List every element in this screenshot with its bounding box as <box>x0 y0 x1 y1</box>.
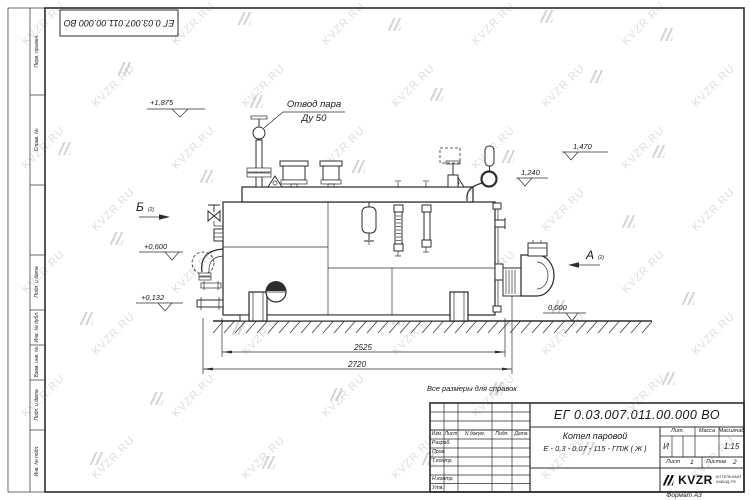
safety-valve-2 <box>320 161 342 187</box>
col-ndokum: N докум. <box>458 430 492 439</box>
side-label-inv-podl: Инв. № подл. <box>34 445 40 476</box>
elevation-0000: 0,000 <box>548 304 567 312</box>
row-tkontr: Т.контр. <box>432 459 453 464</box>
support-leg-1 <box>249 292 267 321</box>
side-label-vzam: Взам. инв. № <box>34 347 40 378</box>
lit-header: Лит. <box>660 427 695 436</box>
top-platform <box>242 187 473 202</box>
product-name-line1: Котел паровой <box>530 429 660 443</box>
side-label-podp2: Подп. и дата <box>34 389 40 420</box>
sheets-value: 2 <box>733 460 737 467</box>
support-leg-2 <box>450 292 468 321</box>
water-level-gauge-1 <box>394 205 403 256</box>
steam-outlet-label-line1: Отвод пара <box>283 100 345 110</box>
side-label-sprav: Справ. № <box>34 129 40 152</box>
row-razrab: Разраб. <box>432 441 451 446</box>
manhole <box>266 281 286 302</box>
masshtab-header: Масштаб <box>719 427 744 436</box>
massa-header: Масса <box>695 427 719 436</box>
dimension-2525: 2525 <box>333 344 393 352</box>
elevation-1470: 1,470 <box>573 143 592 151</box>
sheets-label: Листов <box>706 460 726 466</box>
col-izm: Изм. <box>430 430 444 439</box>
reference-note: Все размеры для справок <box>427 385 517 393</box>
view-label-b: Б <box>136 201 144 213</box>
safety-valve-1 <box>280 161 308 187</box>
lifting-lug-1 <box>268 176 282 187</box>
feed-pump <box>192 249 223 310</box>
sheet-value: 1 <box>690 460 694 467</box>
left-wall-valve <box>208 205 223 226</box>
col-list: Лист <box>444 430 458 439</box>
rear-stub-pipe <box>495 220 505 227</box>
view-label-a-sub: (2) <box>598 256 604 261</box>
logo-subtext-2: ЗАВОД.РФ <box>716 480 741 485</box>
side-label-podp1: Подп. и дата <box>34 266 40 297</box>
side-label-perv: Перв. примен. <box>34 34 40 67</box>
elevation-1875: +1,875 <box>150 99 173 107</box>
col-data: Дата <box>512 430 530 439</box>
row-nkontr: Н.контр. <box>432 477 454 482</box>
ground-hatch <box>213 322 652 334</box>
kvzr-logo-icon <box>663 475 675 486</box>
corner-stamp-text: ЕГ 0.03.007.011.00.000 ВО <box>60 10 178 36</box>
view-label-a: А <box>586 249 594 261</box>
drum-top-valve <box>446 161 460 187</box>
manufacturer-logo: KVZR КОТЕЛЬНЫЙ ЗАВОД.РФ <box>661 469 743 491</box>
masshtab-value: 1:15 <box>719 436 744 457</box>
steam-outlet-label-line2: Ду 50 <box>283 114 345 124</box>
left-wall-stub <box>214 229 223 241</box>
view-label-b-sub: (2) <box>148 208 154 213</box>
col-podp: Подп. <box>492 430 512 439</box>
kvzr-logo-text: KVZR <box>678 473 713 487</box>
lit-value: И <box>660 436 672 457</box>
product-name-line2: Е - 0,3 - 0,07 - 115 - ГПЖ ( Ж ) <box>530 443 660 455</box>
skid-frame <box>240 315 468 321</box>
elevation-0132: +0,132 <box>141 294 164 302</box>
row-utv: Утв. <box>432 486 444 491</box>
steam-outlet-pipe <box>247 116 271 187</box>
row-prov: Пров. <box>432 450 446 455</box>
side-label-inv-dubl: Инв. № дубл. <box>34 312 40 343</box>
burner <box>495 240 554 296</box>
doc-number: ЕГ 0.03.007.011.00.000 ВО <box>530 403 744 427</box>
format-label: Формат А3 <box>660 493 708 500</box>
elevation-0600: +0,600 <box>144 243 167 251</box>
elevation-1240: 1,240 <box>521 169 540 177</box>
sheet-label: Лист <box>666 460 680 466</box>
dimension-2720: 2720 <box>327 361 387 369</box>
drawing-sheet: KVZR.RUKVZR.RUKVZR.RUKVZR.RUKVZR.RUKVZR.… <box>0 0 750 500</box>
